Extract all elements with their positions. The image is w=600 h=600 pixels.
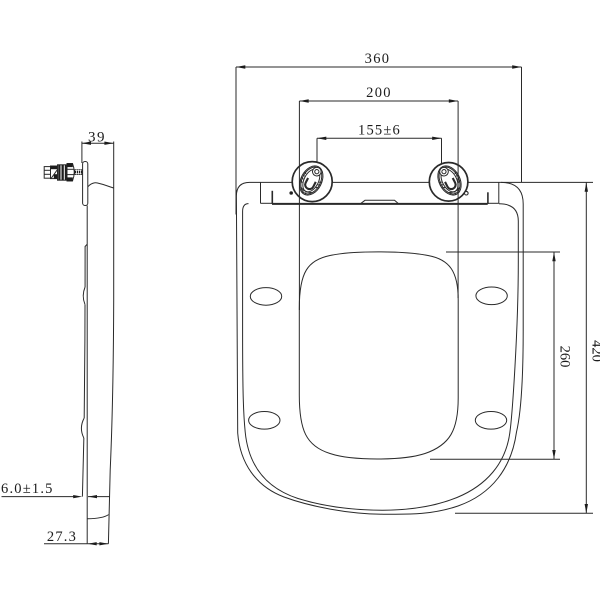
svg-text:155±6: 155±6 bbox=[358, 123, 401, 139]
svg-text:27.3: 27.3 bbox=[47, 529, 77, 545]
svg-text:420: 420 bbox=[589, 340, 600, 362]
svg-text:260: 260 bbox=[557, 346, 573, 368]
svg-text:360: 360 bbox=[365, 51, 391, 67]
svg-text:200: 200 bbox=[366, 85, 392, 101]
svg-text:39: 39 bbox=[88, 130, 106, 146]
svg-text:6.0±1.5: 6.0±1.5 bbox=[1, 481, 54, 497]
